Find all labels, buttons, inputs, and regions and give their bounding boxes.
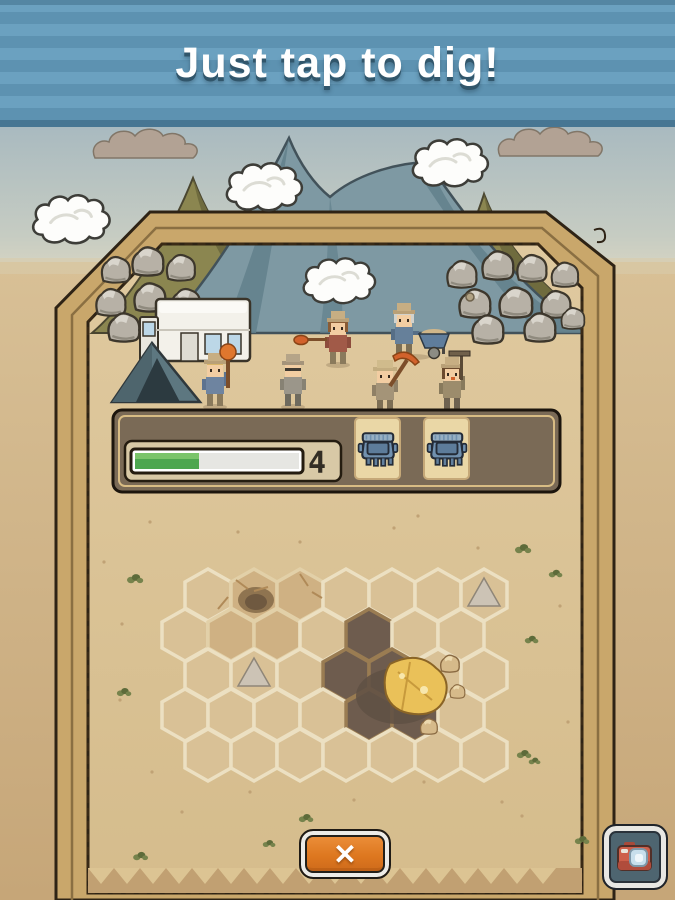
close-icon: ✕: [333, 838, 356, 871]
tutorial-banner: Just tap to dig!: [0, 0, 675, 127]
game-screen: Just tap to dig!: [0, 0, 675, 900]
hex-cell-4-5[interactable]: [415, 729, 461, 781]
hex-cell-4-6[interactable]: [461, 729, 507, 781]
hud-panel: 4: [113, 410, 560, 492]
scene: 4: [0, 127, 675, 900]
crate-slot[interactable]: [355, 418, 400, 479]
camera-button[interactable]: [602, 824, 668, 890]
hex-cell-4-2[interactable]: [277, 729, 323, 781]
progress-fill-highlight: [135, 453, 199, 459]
close-button[interactable]: ✕: [299, 829, 391, 879]
camera-icon: [616, 841, 654, 873]
progress-count: 4: [308, 446, 326, 481]
hex-cell-4-4[interactable]: [369, 729, 415, 781]
hex-cell-4-1[interactable]: [231, 729, 277, 781]
dig-grid[interactable]: [162, 569, 507, 781]
banner-text: Just tap to dig!: [175, 42, 499, 85]
hex-cell-4-3[interactable]: [323, 729, 369, 781]
crate-slot[interactable]: [424, 418, 469, 479]
hex-cell-4-0[interactable]: [185, 729, 231, 781]
